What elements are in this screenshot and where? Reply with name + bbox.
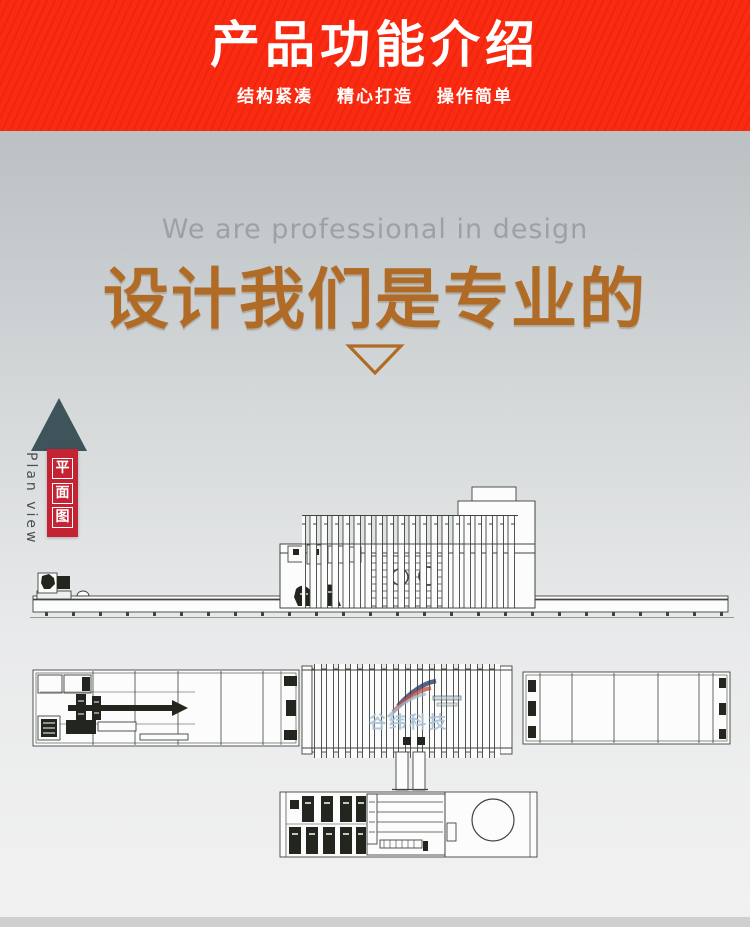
plan-center-chamber [302,664,512,758]
intro-title-cn: 设计我们是专业的 [0,246,750,342]
intro-caption-en: We are professional in design [0,214,750,245]
logo-latin-block [437,703,457,706]
footer-strip [0,917,750,927]
product-intro-page: 产品功能介绍 结构紧凑 精心打造 操作简单 We are professiona… [0,0,750,927]
cad-drawing: 谷纬科技 [0,470,750,860]
divider-with-triangle [0,344,750,380]
detail-bottom-view [280,792,537,857]
machine-elevation [280,487,535,608]
logo-latin-block [433,696,461,700]
watermark-text: 谷纬科技 [369,712,449,733]
header-subtitle: 结构紧凑 精心打造 操作简单 [0,82,750,107]
header-banner: 产品功能介绍 结构紧凑 精心打造 操作简单 [0,0,750,131]
plan-left-assembly [33,670,299,746]
triangle-down-icon [349,346,401,373]
side-elevation-view [30,487,734,618]
up-arrow-icon [31,398,87,451]
page-title: 产品功能介绍 [0,0,750,73]
frame-columns [302,515,518,608]
plan-top-view: 谷纬科技 [33,664,730,790]
plan-right-assembly [523,672,730,744]
